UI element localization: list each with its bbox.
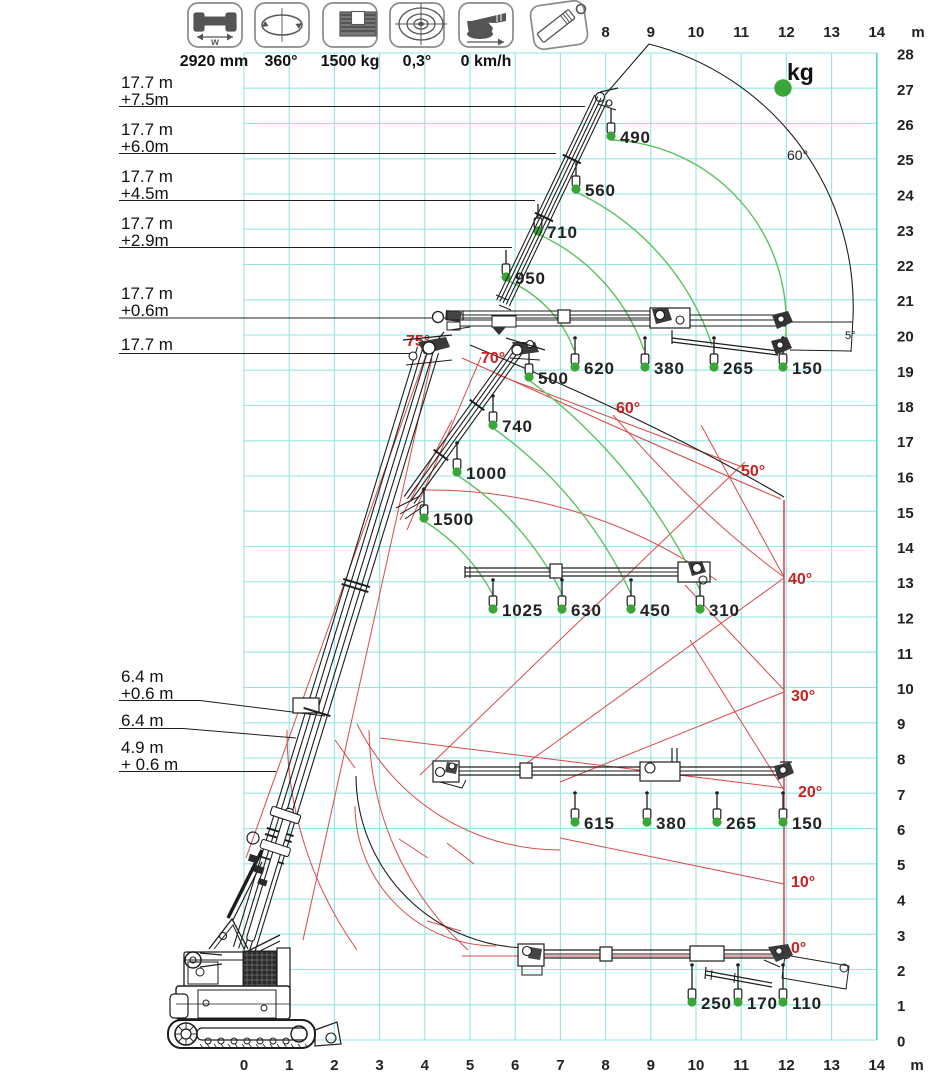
svg-text:8: 8: [601, 24, 609, 41]
svg-text:23: 23: [897, 223, 914, 240]
svg-text:8: 8: [897, 752, 905, 769]
svg-text:11: 11: [733, 24, 749, 41]
svg-text:250: 250: [701, 994, 732, 1013]
svg-text:500: 500: [538, 369, 569, 388]
svg-text:14: 14: [897, 540, 914, 557]
svg-text:560: 560: [585, 181, 616, 200]
svg-text:26: 26: [897, 117, 914, 134]
svg-text:13: 13: [823, 24, 840, 41]
svg-text:310: 310: [709, 601, 740, 620]
svg-text:380: 380: [654, 359, 685, 378]
svg-text:5°: 5°: [845, 330, 856, 342]
svg-text:10: 10: [897, 681, 914, 698]
svg-text:10: 10: [688, 1057, 705, 1074]
svg-text:3: 3: [375, 1057, 383, 1074]
svg-text:16: 16: [897, 470, 914, 487]
svg-text:170: 170: [747, 994, 778, 1013]
svg-text:17: 17: [897, 434, 914, 451]
svg-text:3: 3: [897, 928, 905, 945]
svg-text:380: 380: [656, 814, 687, 833]
svg-text:630: 630: [571, 601, 602, 620]
svg-text:150: 150: [792, 359, 823, 378]
svg-text:490: 490: [620, 128, 651, 147]
svg-text:70°: 70°: [481, 350, 505, 367]
svg-text:12: 12: [778, 24, 795, 41]
svg-text:7: 7: [556, 1057, 564, 1074]
svg-text:13: 13: [823, 1057, 840, 1074]
svg-text:30°: 30°: [791, 688, 815, 705]
svg-text:20°: 20°: [798, 784, 822, 801]
svg-text:12: 12: [778, 1057, 795, 1074]
svg-text:14: 14: [868, 24, 885, 41]
svg-text:27: 27: [897, 82, 914, 99]
svg-text:15: 15: [897, 505, 914, 522]
svg-text:710: 710: [547, 223, 578, 242]
svg-text:6: 6: [511, 1057, 519, 1074]
svg-text:110: 110: [792, 994, 822, 1013]
svg-text:19: 19: [897, 364, 914, 381]
svg-text:1500: 1500: [433, 510, 474, 529]
svg-text:4: 4: [421, 1057, 430, 1074]
svg-text:24: 24: [897, 188, 914, 205]
svg-text:+0.6m: +0.6m: [121, 301, 169, 320]
svg-text:60°: 60°: [616, 400, 640, 417]
svg-text:60°: 60°: [787, 147, 808, 163]
svg-text:10: 10: [688, 24, 705, 41]
svg-text:0,3°: 0,3°: [403, 53, 432, 70]
svg-text:14: 14: [868, 1057, 885, 1074]
svg-text:7: 7: [897, 787, 905, 804]
svg-text:9: 9: [647, 24, 655, 41]
svg-text:6: 6: [897, 822, 905, 839]
svg-text:6.4 m: 6.4 m: [121, 711, 164, 730]
svg-text:1: 1: [897, 998, 905, 1015]
svg-text:18: 18: [897, 399, 914, 416]
svg-text:740: 740: [502, 417, 533, 436]
svg-text:17.7 m: 17.7 m: [121, 335, 173, 354]
svg-text:0: 0: [240, 1057, 248, 1074]
svg-text:265: 265: [726, 814, 757, 833]
svg-text:10°: 10°: [791, 874, 815, 891]
svg-text:0°: 0°: [791, 940, 806, 957]
svg-text:2: 2: [330, 1057, 338, 1074]
svg-text:5: 5: [466, 1057, 474, 1074]
svg-text:12: 12: [897, 611, 914, 628]
svg-text:40°: 40°: [788, 571, 812, 588]
svg-text:450: 450: [640, 601, 671, 620]
svg-text:1500 kg: 1500 kg: [321, 53, 380, 70]
svg-text:50°: 50°: [741, 463, 765, 480]
svg-text:m: m: [911, 24, 924, 41]
svg-text:4: 4: [897, 893, 906, 910]
svg-text:w: w: [210, 37, 219, 48]
svg-text:9: 9: [647, 1057, 655, 1074]
svg-text:0: 0: [897, 1034, 905, 1051]
svg-text:150: 150: [792, 814, 823, 833]
svg-text:360°: 360°: [264, 53, 297, 70]
svg-text:13: 13: [897, 575, 914, 592]
svg-text:265: 265: [723, 359, 754, 378]
svg-text:22: 22: [897, 258, 914, 275]
svg-text:9: 9: [897, 716, 905, 733]
svg-text:5: 5: [897, 857, 905, 874]
svg-text:11: 11: [897, 646, 913, 663]
svg-text:m: m: [910, 1057, 923, 1074]
svg-text:0 km/h: 0 km/h: [461, 53, 512, 70]
svg-text:8: 8: [601, 1057, 609, 1074]
svg-text:28: 28: [897, 47, 914, 64]
svg-text:25: 25: [897, 152, 914, 169]
svg-text:2920 mm: 2920 mm: [180, 53, 249, 70]
svg-text:kg: kg: [787, 59, 814, 85]
svg-text:2: 2: [897, 963, 905, 980]
svg-text:21: 21: [897, 293, 914, 310]
svg-text:620: 620: [584, 359, 615, 378]
svg-text:20: 20: [897, 329, 914, 346]
svg-text:1: 1: [285, 1057, 293, 1074]
svg-text:1025: 1025: [502, 601, 543, 620]
svg-text:1000: 1000: [466, 464, 507, 483]
svg-text:11: 11: [733, 1057, 749, 1074]
svg-text:615: 615: [584, 814, 615, 833]
